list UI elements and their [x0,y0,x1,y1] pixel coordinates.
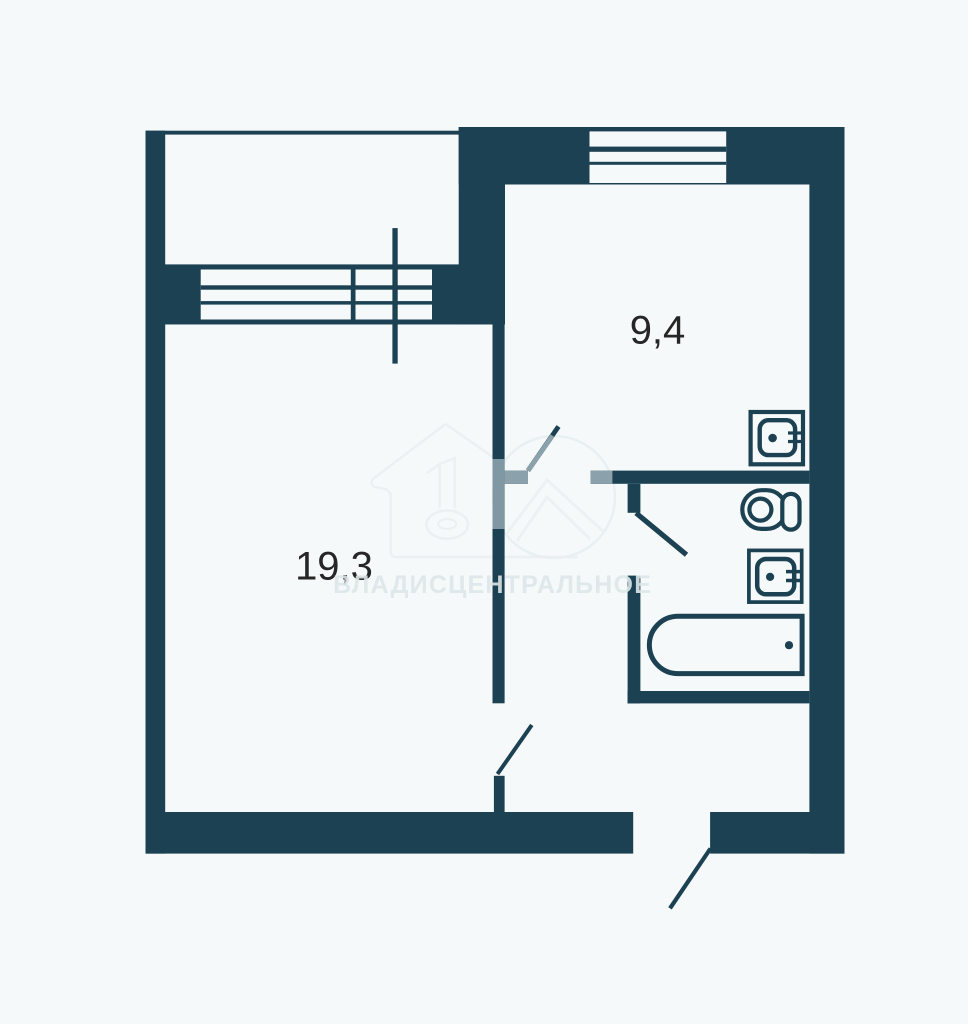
svg-text:ВЛАДИСЦЕНТРАЛЬНОЕ: ВЛАДИСЦЕНТРАЛЬНОЕ [333,571,652,599]
svg-text:9,4: 9,4 [630,309,686,353]
